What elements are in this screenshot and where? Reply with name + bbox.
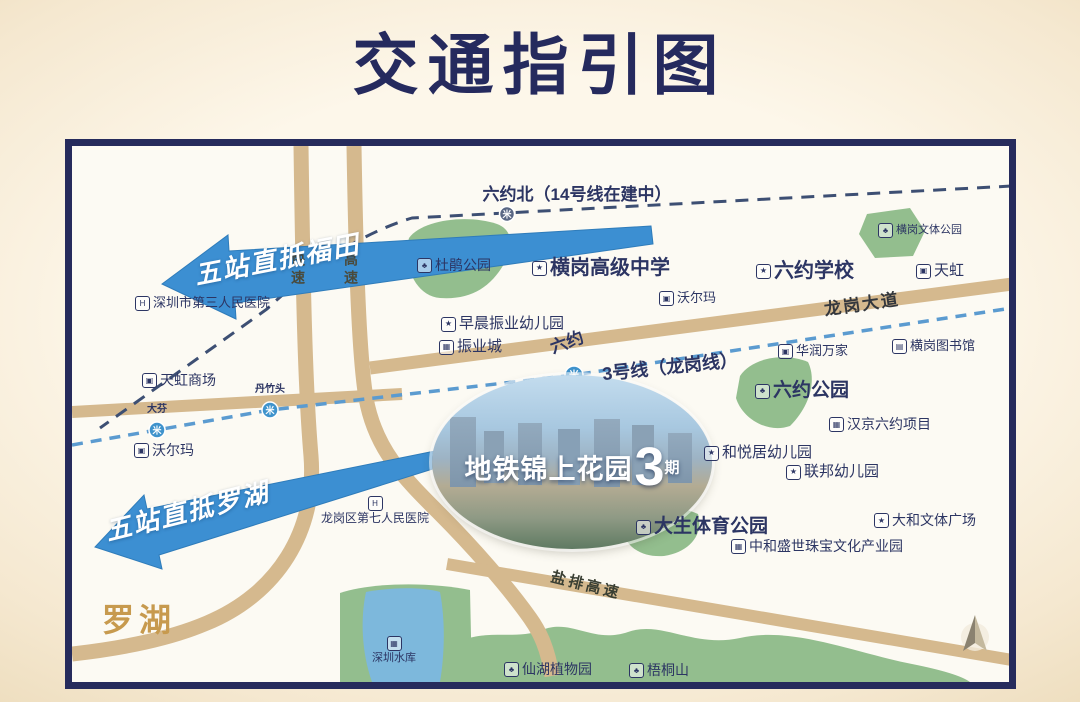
poi-label: 大芬 <box>147 404 167 415</box>
map-poi: ★和悦居幼儿园 <box>704 445 812 462</box>
poi-label: 振业城 <box>457 339 502 356</box>
shop-icon: ▣ <box>142 373 157 388</box>
map-poi: ♣横岗文体公园 <box>878 223 962 238</box>
school-icon: ★ <box>441 317 456 332</box>
poi-label: 仙湖植物园 <box>522 662 592 677</box>
hospital-icon: H <box>367 496 382 511</box>
building-icon: ▦ <box>829 417 844 432</box>
building-icon: ▦ <box>731 539 746 554</box>
map-poi: ▣华润万家 <box>778 344 848 359</box>
school-icon: ★ <box>756 264 771 279</box>
map-poi: ▤横岗图书馆 <box>892 339 975 354</box>
poi-label: 梧桐山 <box>647 663 689 678</box>
map-poi: ★早晨振业幼儿园 <box>441 316 564 333</box>
poi-label: 横岗图书馆 <box>910 339 975 353</box>
poi-label: 沃尔玛 <box>677 291 716 305</box>
park-icon: ♣ <box>504 662 519 677</box>
shop-icon: ▣ <box>916 264 931 279</box>
library-icon: ▤ <box>892 339 907 354</box>
hospital-icon: H <box>135 296 150 311</box>
poi-label: 六约学校 <box>774 260 854 282</box>
poi-layer: 六约北（14号线在建中）H深圳市第三人民医院▣天虹商场▣沃尔玛大芬丹竹头♣杜鹃公… <box>72 146 1009 682</box>
poi-label: 横岗高级中学 <box>550 257 670 279</box>
building-icon: ▦ <box>387 636 402 651</box>
poi-label: 天虹商场 <box>160 373 216 388</box>
shop-icon: ▣ <box>659 291 674 306</box>
map-poi: ♣六约公园 <box>755 381 849 402</box>
map-poi: ▣天虹 <box>916 263 964 280</box>
page-title: 交通指引图 <box>0 12 1080 108</box>
poi-label: 大生体育公园 <box>654 517 768 538</box>
park-icon: ♣ <box>636 520 651 535</box>
map-poi: ▣天虹商场 <box>142 373 216 388</box>
school-icon: ★ <box>874 513 889 528</box>
poi-label: 杜鹃公园 <box>435 258 491 273</box>
poi-label: 丹竹头 <box>255 384 285 395</box>
school-icon: ★ <box>704 446 719 461</box>
poi-label: 早晨振业幼儿园 <box>459 316 564 333</box>
map-poi: ♣杜鹃公园 <box>417 258 491 273</box>
map-poi: ▦中和盛世珠宝文化产业园 <box>731 539 903 554</box>
map-poi: ★联邦幼儿园 <box>786 464 879 481</box>
park-icon: ♣ <box>878 223 893 238</box>
poi-label: 中和盛世珠宝文化产业园 <box>749 539 903 554</box>
map-poi: ★横岗高级中学 <box>532 257 670 279</box>
poi-label: 六约北（14号线在建中） <box>483 186 672 205</box>
poi-label: 华润万家 <box>796 344 848 358</box>
map-poi: ★六约学校 <box>756 260 854 282</box>
school-icon: ★ <box>786 465 801 480</box>
traffic-map: 米 米 米 米 <box>65 139 1016 689</box>
poi-label: 横岗文体公园 <box>896 224 962 236</box>
map-poi: ♣梧桐山 <box>629 663 689 678</box>
building-icon: ▦ <box>439 340 454 355</box>
poi-label: 联邦幼儿园 <box>804 464 879 481</box>
map-poi: H龙岗区第七人民医院 <box>321 496 429 525</box>
shop-icon: ▣ <box>778 344 793 359</box>
park-icon: ♣ <box>755 384 770 399</box>
map-poi: 六约北（14号线在建中） <box>483 186 672 205</box>
shop-icon: ▣ <box>134 443 149 458</box>
park-icon: ♣ <box>417 258 432 273</box>
map-poi: ▣沃尔玛 <box>659 291 716 306</box>
page: 交通指引图 米 <box>0 0 1080 702</box>
park-icon: ♣ <box>629 663 644 678</box>
poi-label: 深圳水库 <box>372 652 416 664</box>
school-icon: ★ <box>532 261 547 276</box>
poi-label: 大和文体广场 <box>892 513 976 528</box>
map-poi: ♣大生体育公园 <box>636 517 768 538</box>
map-poi: ▦汉京六约项目 <box>829 417 931 432</box>
map-poi: ▦深圳水库 <box>372 636 416 664</box>
map-poi: ▦振业城 <box>439 339 502 356</box>
poi-label: 沃尔玛 <box>152 443 194 458</box>
poi-label: 汉京六约项目 <box>847 417 931 432</box>
map-poi: ★大和文体广场 <box>874 513 976 528</box>
poi-label: 六约公园 <box>773 381 849 402</box>
map-poi: 丹竹头 <box>255 384 285 395</box>
map-poi: ▣沃尔玛 <box>134 443 194 458</box>
poi-label: 天虹 <box>934 263 964 280</box>
poi-label: 和悦居幼儿园 <box>722 445 812 462</box>
map-poi: H深圳市第三人民医院 <box>135 296 270 311</box>
poi-label: 深圳市第三人民医院 <box>153 296 270 310</box>
map-poi: 大芬 <box>147 404 167 415</box>
poi-label: 龙岗区第七人民医院 <box>321 512 429 525</box>
map-poi: ♣仙湖植物园 <box>504 662 592 677</box>
